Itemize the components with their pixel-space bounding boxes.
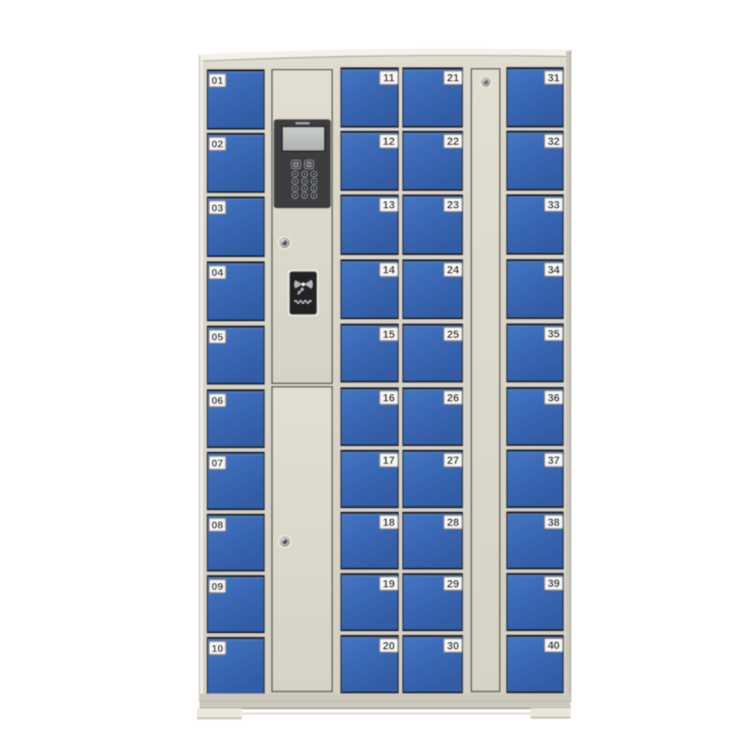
svg-text:02: 02 (212, 139, 224, 151)
svg-text:39: 39 (548, 578, 560, 590)
svg-text:15: 15 (383, 329, 395, 341)
svg-text:23: 23 (447, 200, 459, 212)
svg-text:28: 28 (447, 517, 459, 529)
svg-text:36: 36 (548, 392, 560, 404)
svg-text:09: 09 (212, 581, 224, 593)
svg-text:05: 05 (212, 332, 224, 344)
svg-text:34: 34 (548, 264, 561, 276)
svg-text:40: 40 (548, 640, 560, 652)
svg-text:08: 08 (212, 520, 224, 532)
svg-text:19: 19 (383, 578, 395, 590)
svg-text:31: 31 (548, 72, 560, 84)
svg-text:38: 38 (548, 517, 560, 529)
svg-text:06: 06 (212, 395, 224, 407)
svg-text:20: 20 (383, 640, 395, 652)
svg-text:35: 35 (548, 329, 560, 341)
svg-text:30: 30 (447, 640, 459, 652)
svg-text:16: 16 (383, 393, 395, 405)
svg-text:01: 01 (212, 75, 224, 87)
svg-text:32: 32 (548, 136, 560, 148)
svg-text:10: 10 (212, 643, 224, 655)
svg-text:21: 21 (447, 73, 459, 85)
svg-text:14: 14 (383, 265, 396, 277)
svg-text:12: 12 (383, 136, 395, 148)
svg-text:24: 24 (447, 265, 460, 277)
svg-text:17: 17 (383, 455, 395, 467)
svg-text:11: 11 (383, 73, 395, 85)
svg-text:25: 25 (447, 329, 459, 341)
svg-text:07: 07 (212, 458, 224, 470)
svg-text:04: 04 (212, 267, 224, 279)
svg-text:03: 03 (212, 202, 224, 214)
svg-text:18: 18 (383, 517, 395, 529)
svg-text:13: 13 (383, 200, 395, 212)
svg-text:29: 29 (447, 578, 459, 590)
svg-text:33: 33 (548, 200, 560, 212)
svg-text:22: 22 (447, 136, 459, 148)
svg-text:37: 37 (548, 455, 560, 467)
svg-text:26: 26 (447, 393, 459, 405)
svg-text:27: 27 (447, 455, 459, 467)
